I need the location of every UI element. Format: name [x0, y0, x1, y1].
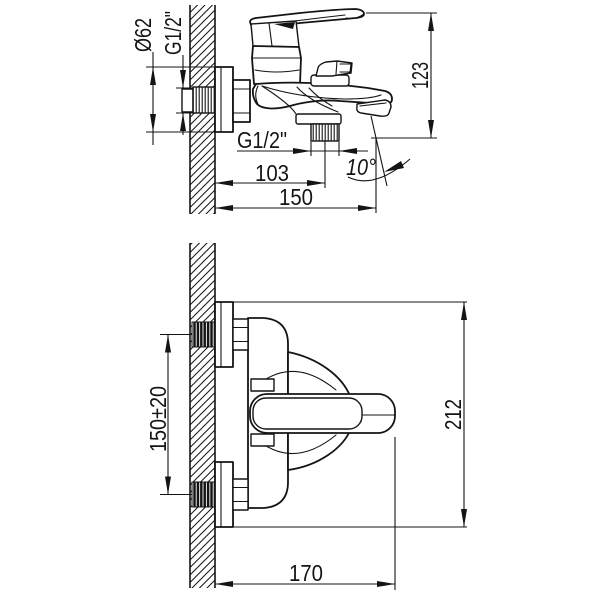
inlet-thread-upper [192, 322, 215, 347]
dim-label-inlet-thread: G1/2" [160, 11, 186, 55]
arrowhead [428, 13, 434, 31]
arrowhead [180, 113, 186, 131]
dim-label-flange-diameter: Ø62 [130, 18, 156, 52]
dim-label-inlet-spacing: 150±20 [145, 386, 171, 452]
wall-flange [215, 67, 233, 132]
inlet-thread [193, 87, 215, 113]
inlet-pipe-end [182, 89, 193, 112]
body-tab [251, 379, 274, 391]
arrowhead [461, 509, 467, 527]
connection-nut [233, 80, 250, 122]
dim-overall-length: 212 [440, 302, 467, 527]
arrowhead [165, 335, 171, 353]
arrowhead [215, 205, 233, 211]
dim-inlet-spacing: 150±20 [145, 335, 192, 495]
dim-label-outlet-thread: G1/2" [237, 127, 287, 153]
arrowhead [150, 67, 156, 85]
arrowhead [215, 180, 233, 186]
dim-overall-height: 123 [366, 13, 437, 138]
wall-flange-upper [215, 302, 233, 367]
outlet-flange [296, 114, 341, 124]
connection-nut-lower [233, 479, 248, 510]
faucet-plan-profile [192, 302, 395, 527]
side-view: Ø62 G1/2" 123 G1/2" [130, 5, 437, 214]
technical-drawing: Ø62 G1/2" 123 G1/2" [0, 0, 600, 600]
outlet-thread [311, 124, 339, 141]
wall-hatch [190, 243, 215, 588]
dim-outlet-thread: G1/2" [237, 127, 368, 156]
arrowhead [150, 114, 156, 132]
arrowhead [428, 120, 434, 138]
arrowhead [293, 148, 311, 154]
arrowhead [180, 70, 186, 88]
arrowhead [358, 205, 376, 211]
wall-section-plan [190, 243, 215, 588]
dim-label-overall-height: 123 [407, 62, 433, 89]
arrowhead [215, 581, 233, 587]
plan-view: 150±20 212 170 [145, 243, 467, 590]
dim-label-overall-length: 212 [440, 399, 466, 430]
inlet-thread-lower [192, 482, 215, 507]
arrowhead [165, 477, 171, 495]
handle-top-surface [253, 398, 362, 429]
dim-label-spout-angle: 10° [346, 154, 376, 180]
arrowhead [377, 581, 395, 587]
body-tab [251, 434, 274, 446]
wall-flange-lower [215, 462, 233, 527]
dim-label-spout-reach: 150 [279, 184, 313, 210]
dim-inlet-thread: G1/2" [160, 11, 193, 135]
mixer-body [252, 46, 301, 84]
dim-label-handle-reach: 170 [289, 560, 323, 586]
diverter-knob [316, 61, 352, 76]
dim-label-outlet-offset: 103 [255, 160, 289, 186]
connection-nut-upper [233, 319, 248, 350]
arrowhead [461, 302, 467, 320]
